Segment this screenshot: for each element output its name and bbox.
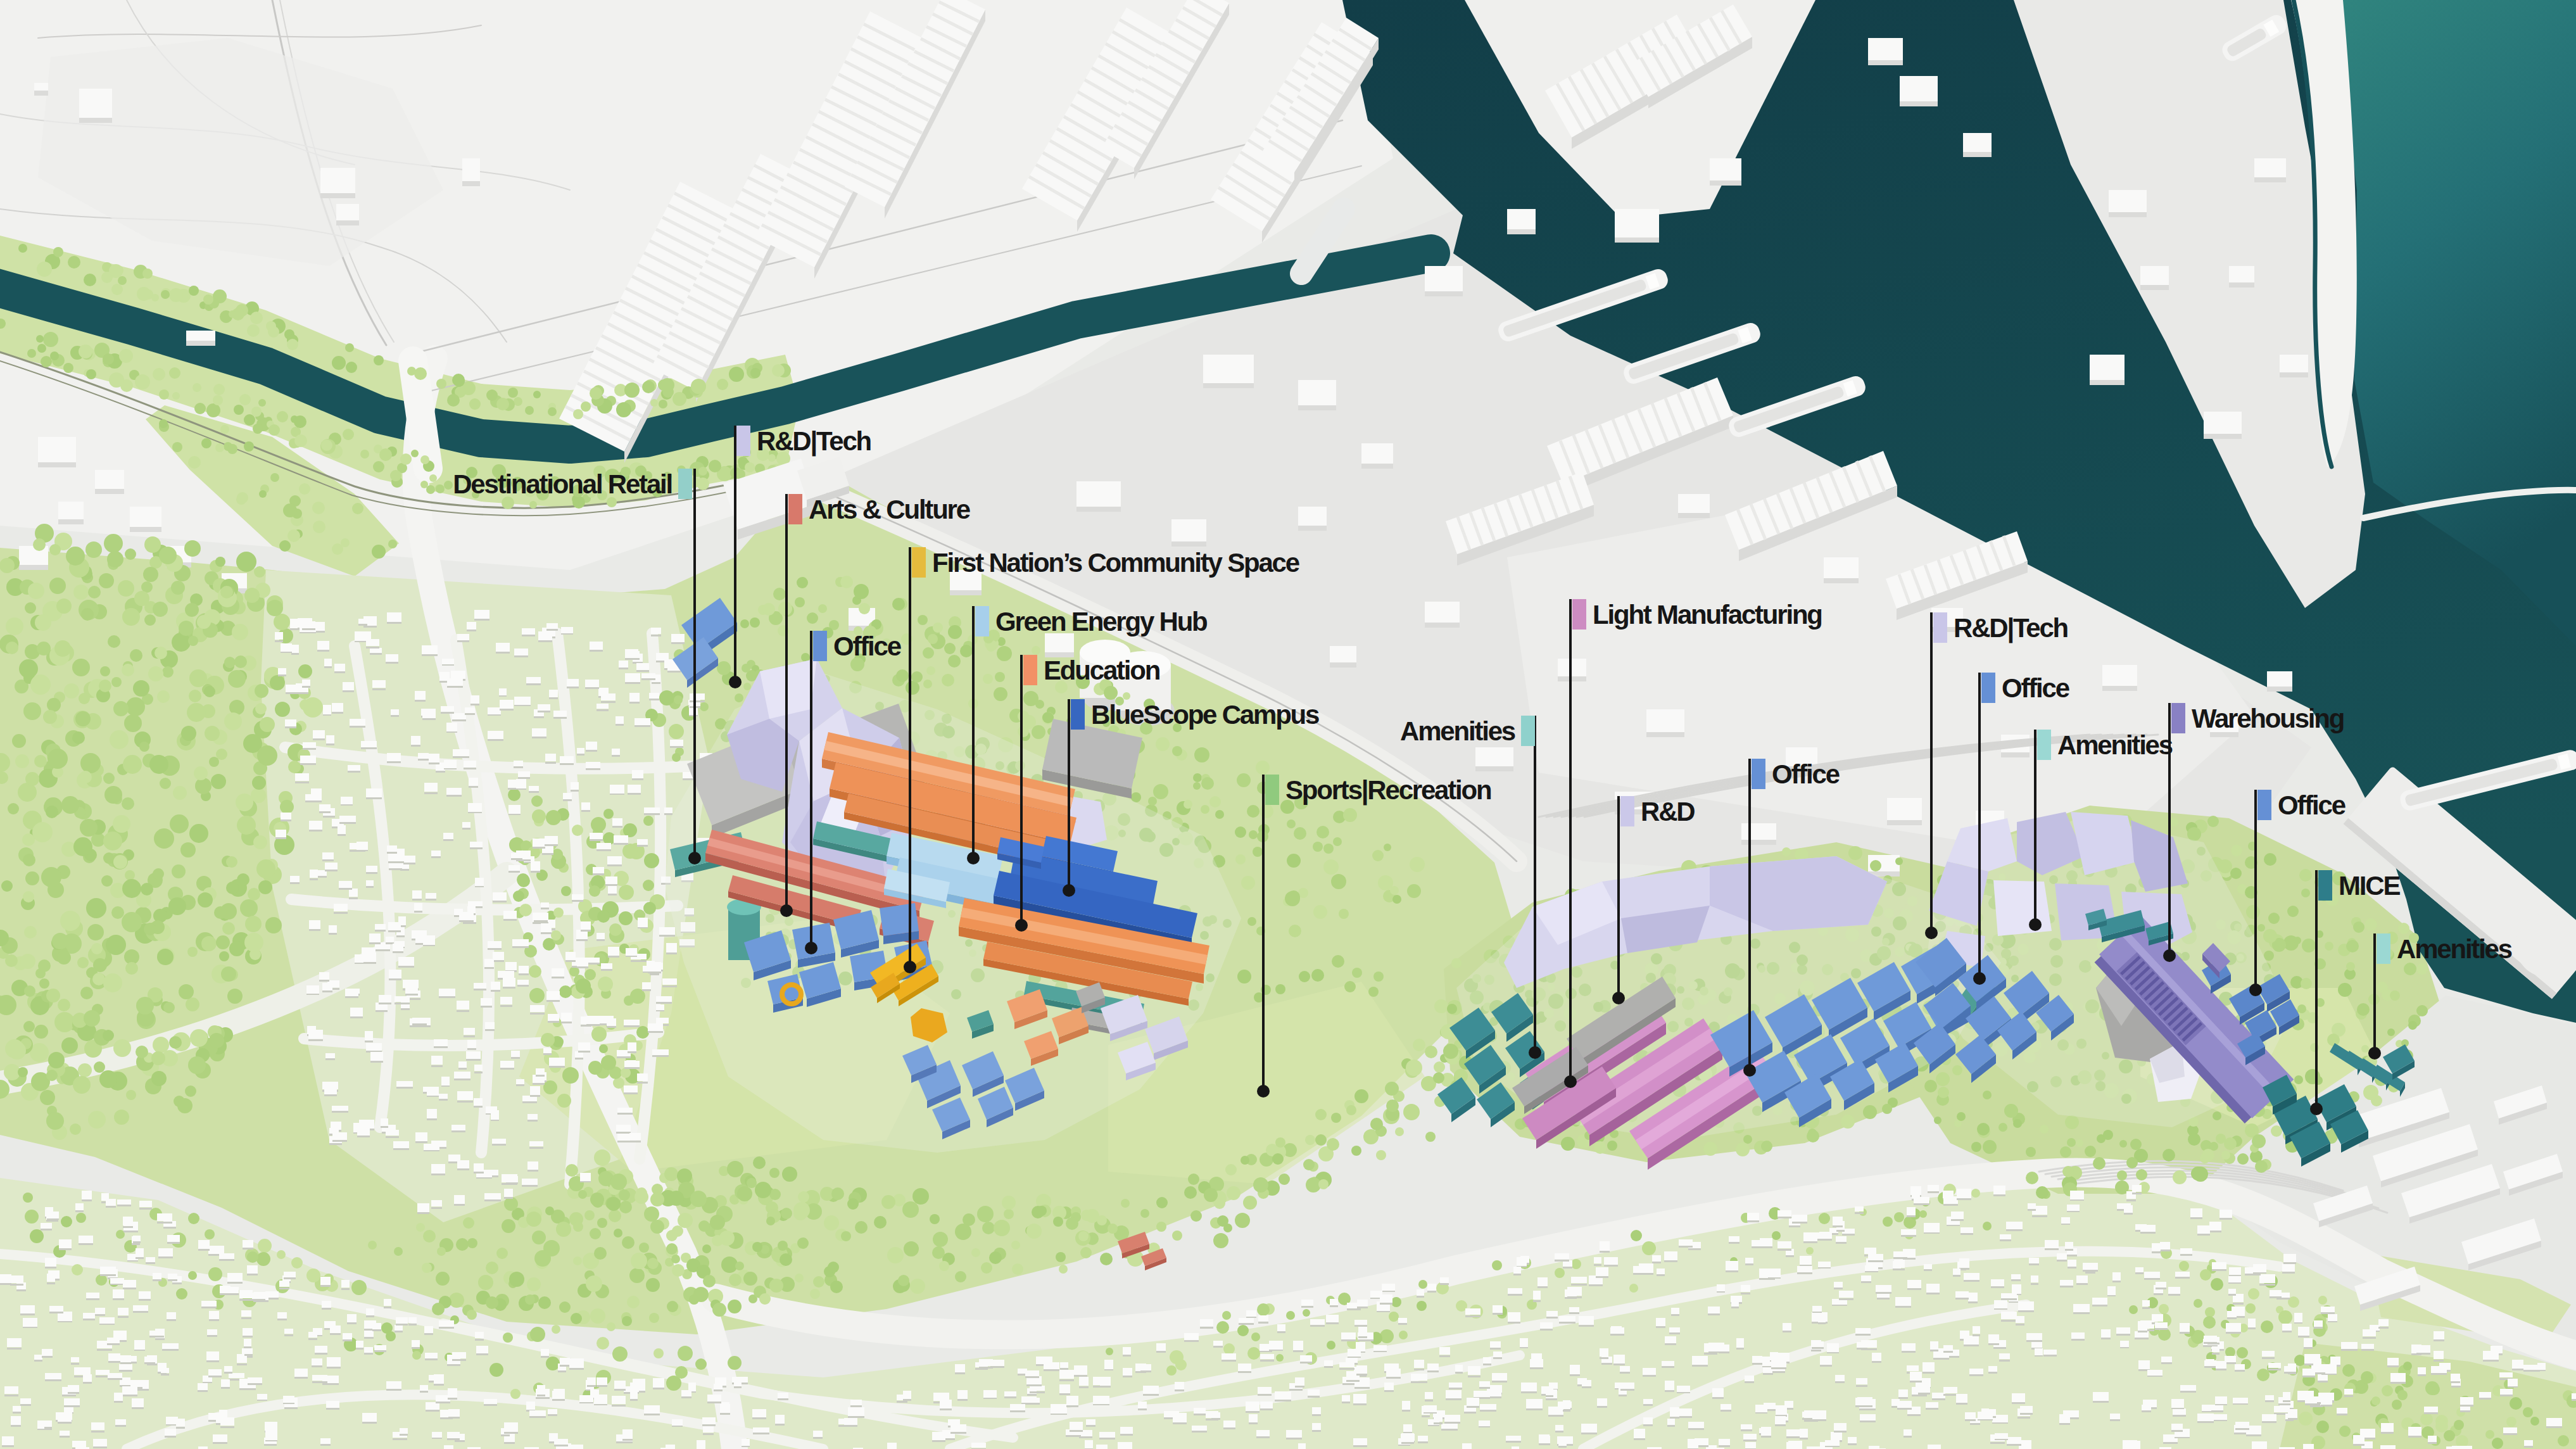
svg-text:Green Energy Hub: Green Energy Hub	[995, 607, 1207, 636]
svg-text:R&D|Tech: R&D|Tech	[757, 426, 871, 457]
svg-text:Education: Education	[1044, 655, 1160, 685]
svg-text:Arts & Culture: Arts & Culture	[809, 495, 970, 524]
svg-text:Office: Office	[2278, 790, 2346, 820]
svg-text:First Nation’s Community Space: First Nation’s Community Space	[932, 548, 1299, 578]
svg-text:Amenities: Amenities	[2057, 730, 2173, 760]
svg-text:Amenities: Amenities	[2397, 934, 2512, 964]
svg-text:MICE: MICE	[2339, 871, 2400, 901]
svg-text:R&D: R&D	[1641, 797, 1695, 826]
svg-text:Office: Office	[2002, 673, 2069, 703]
svg-text:Warehousing: Warehousing	[2192, 704, 2344, 733]
svg-text:R&D|Tech: R&D|Tech	[1954, 613, 2068, 643]
svg-text:Sports|Recreation: Sports|Recreation	[1285, 775, 1491, 806]
svg-text:Light Manufacturing: Light Manufacturing	[1593, 600, 1822, 630]
svg-text:BlueScope Campus: BlueScope Campus	[1091, 700, 1319, 730]
svg-text:Office: Office	[1772, 759, 1840, 789]
svg-text:Destinational Retail: Destinational Retail	[453, 469, 672, 499]
svg-text:Office: Office	[833, 631, 901, 661]
svg-text:Amenities: Amenities	[1400, 716, 1515, 746]
